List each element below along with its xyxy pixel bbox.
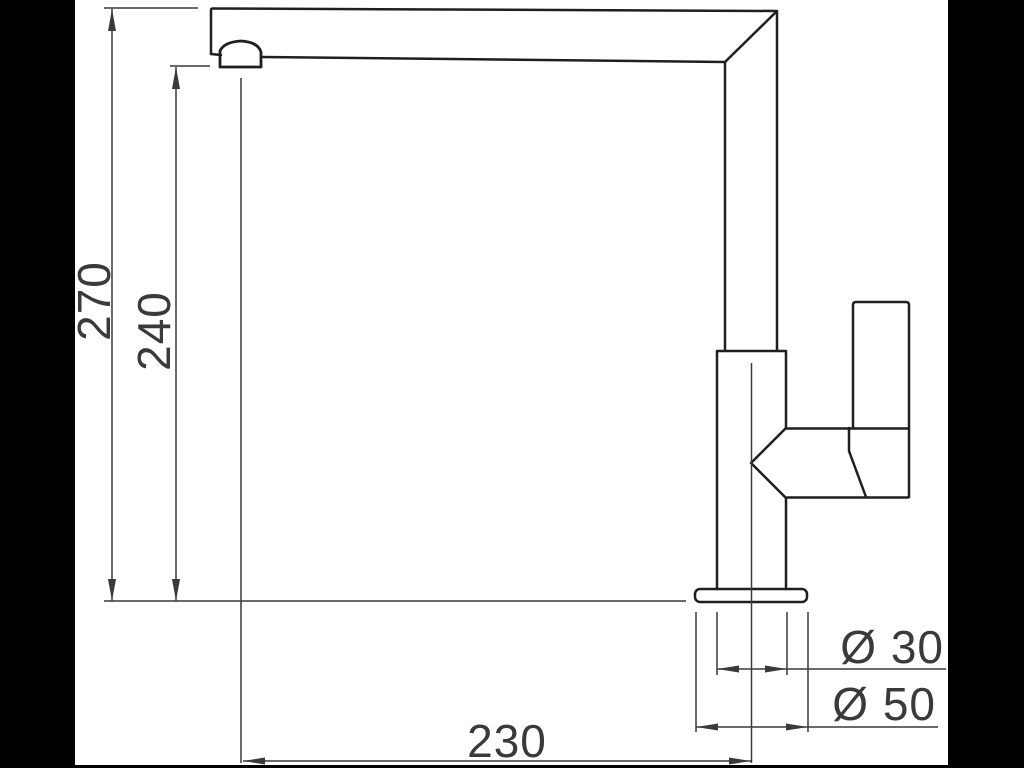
label-spout-height: 240 xyxy=(128,291,180,371)
faucet-technical-drawing: 270 240 230 Ø 30 Ø 50 xyxy=(0,0,1024,768)
drawing-paper xyxy=(75,0,948,765)
label-overall-height: 270 xyxy=(68,261,120,341)
label-base-diameter: Ø 50 xyxy=(832,678,936,730)
label-spout-reach: 230 xyxy=(467,715,547,767)
label-body-diameter: Ø 30 xyxy=(840,621,944,673)
